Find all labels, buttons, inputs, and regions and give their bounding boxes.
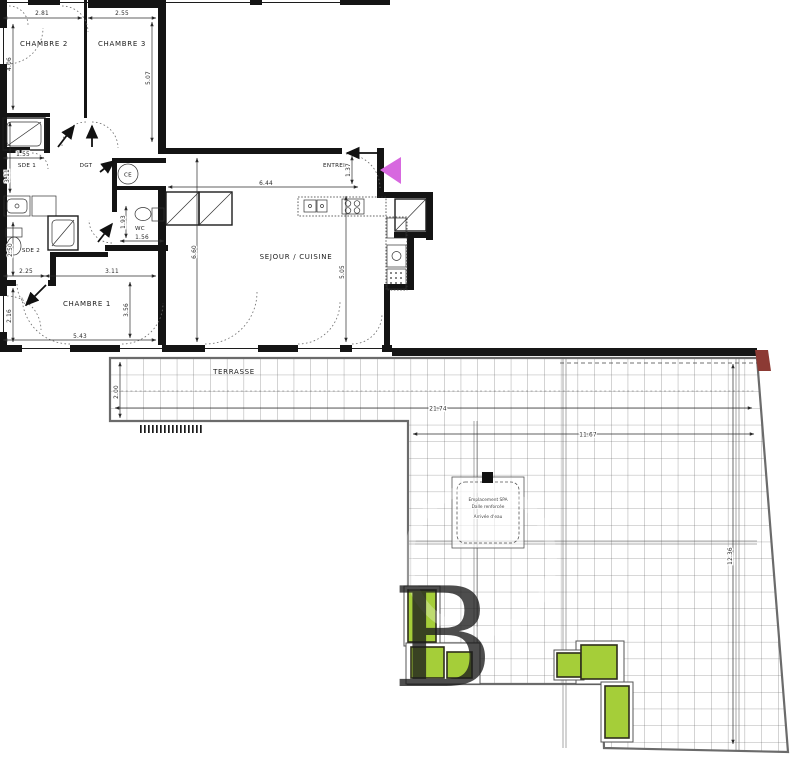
label-ce: CE — [124, 173, 132, 179]
room-label-entree: ENTREE — [323, 163, 347, 169]
terrace-top-wall — [392, 348, 757, 356]
room-label-terrasse: TERRASSE — [212, 368, 255, 376]
water-heater: CE — [118, 164, 138, 184]
room-label-sde1: SDE 1 — [18, 163, 36, 169]
dim-sde1-w: 1.55 — [16, 152, 30, 158]
appliance-dots — [390, 272, 402, 284]
dim-ch1-small-w: 2.25 — [19, 269, 33, 275]
dim-sejour-w: 6.44 — [259, 181, 273, 187]
dim-ch2-h: 4.06 — [7, 57, 13, 71]
spa-note-line1: Emplacement SPA — [468, 497, 507, 503]
dim-sde2-h: 2.50 — [8, 243, 14, 257]
spa-area: Emplacement SPA Dalle renforcée Arrivée … — [452, 472, 524, 548]
room-label-chambre2: CHAMBRE 2 — [20, 40, 68, 48]
dim-sejour-right-h: 5.05 — [340, 265, 346, 279]
room-label-sejour: SEJOUR / CUISINE — [260, 253, 333, 261]
planter — [557, 653, 581, 677]
room-label-wc: WC — [135, 226, 145, 232]
cabinet — [32, 196, 56, 216]
washbasin — [4, 196, 30, 216]
dim-terrace-lower-h: 12.36 — [728, 547, 734, 565]
floor-plan-drawing: Emplacement SPA Dalle renforcée Arrivée … — [0, 0, 800, 764]
dim-terrace-depth: 2.00 — [114, 385, 120, 399]
door-arcs — [7, 6, 382, 344]
fixtures: CE — [3, 118, 426, 290]
dim-ch1-h: 2.16 — [7, 309, 13, 323]
planter — [605, 686, 629, 738]
dim-entree-h: 1.37 — [346, 163, 352, 177]
room-labels: CHAMBRE 2 CHAMBRE 3 SDE 1 DGT SDE 2 WC C… — [18, 40, 347, 308]
dim-ch1-bottom-w: 5.43 — [73, 334, 87, 340]
planter — [581, 645, 617, 679]
kitchen — [298, 197, 407, 290]
dim-ch3-h: 5.07 — [146, 71, 152, 85]
dim-sejour-left-h: 6.60 — [192, 245, 198, 259]
dim-terrace-total-w: 21.74 — [429, 407, 447, 413]
watermark-letter: B — [392, 558, 493, 719]
grating — [140, 425, 204, 433]
dim-top-ch2: 2.81 — [35, 11, 49, 17]
dim-terrace-lower-w: 11.67 — [579, 433, 597, 439]
dim-wc-h: 1.93 — [121, 215, 127, 229]
dim-wc-w: 1.56 — [135, 235, 149, 241]
terrace: Emplacement SPA Dalle renforcée Arrivée … — [110, 348, 788, 752]
dim-top-ch3: 2.55 — [115, 11, 129, 17]
room-label-sde2: SDE 2 — [22, 248, 40, 254]
shower-sde2 — [48, 216, 78, 250]
dim-ch1-right-h: 3.56 — [124, 303, 130, 317]
spa-note-line3: Arrivée d'eau — [474, 513, 503, 520]
spa-note-line2: Dalle renforcée — [472, 503, 505, 510]
room-label-chambre1: CHAMBRE 1 — [63, 300, 111, 308]
room-label-chambre3: CHAMBRE 3 — [98, 40, 146, 48]
dim-sde1-h: 3.11 — [5, 169, 11, 183]
dim-ch1-w: 3.11 — [105, 269, 119, 275]
shower-sde1 — [3, 118, 45, 150]
spa-anchor — [482, 472, 493, 483]
room-label-dgt: DGT — [80, 163, 93, 169]
floor-plan: Emplacement SPA Dalle renforcée Arrivée … — [0, 0, 800, 764]
